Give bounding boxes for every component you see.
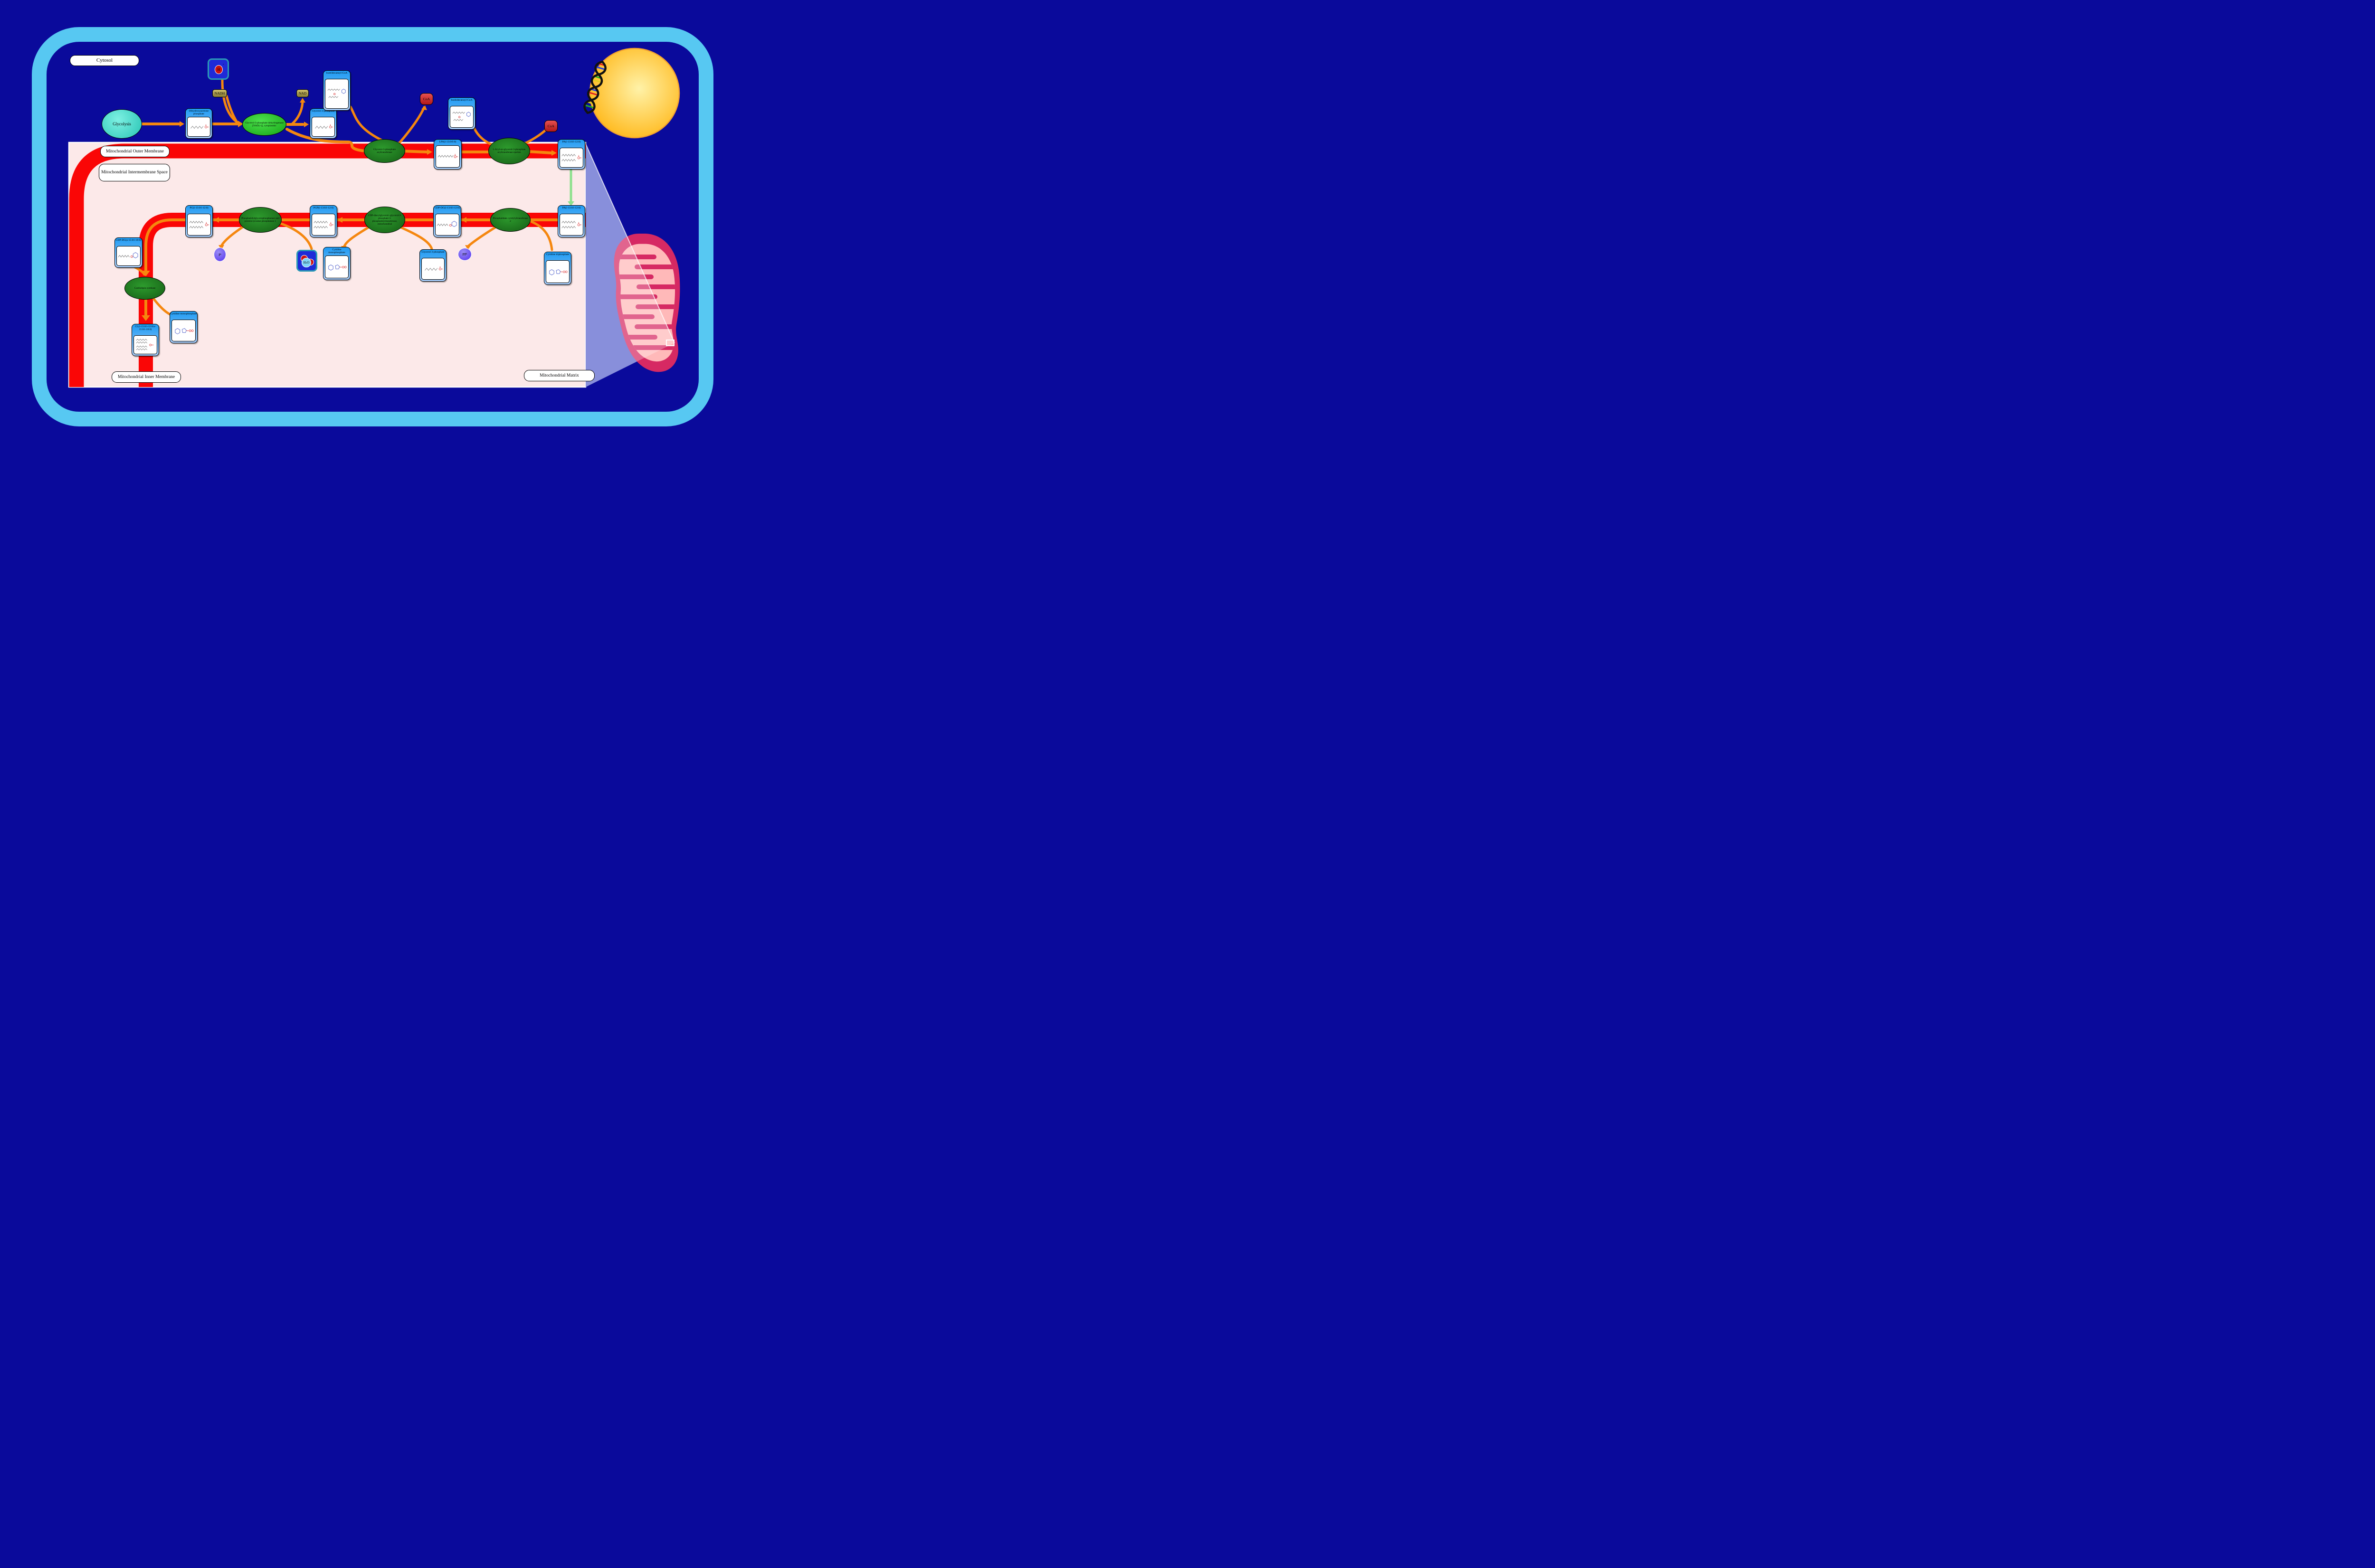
chemical-structure: [312, 214, 335, 236]
cofactor-ppi[interactable]: PPi: [458, 248, 472, 261]
metabolite-label: LPA(i-13:0/0:0): [434, 140, 461, 143]
chemical-structure: [325, 79, 349, 109]
metabolite-label: PA(i-13:0/i-12:0): [558, 140, 585, 143]
chemical-structure: [187, 117, 210, 137]
metabolite-node-pg[interactable]: PG(i-13:0/i-12:0): [185, 205, 213, 237]
cofactor-coa-1[interactable]: CoA: [420, 93, 433, 105]
chemical-structure: [436, 145, 460, 168]
chemical-structure: [325, 255, 349, 278]
chemical-structure: [560, 214, 583, 236]
metabolite-label: CDP-DG(a-15:0/i-18:0): [115, 238, 142, 242]
chemical-structure: [133, 335, 157, 354]
compartment-label-cytosol: Cytosol: [70, 55, 139, 66]
cofactor-nad[interactable]: NAD: [296, 89, 309, 97]
metabolite-node-pgp[interactable]: PGP(i-13:0/i-12:0): [310, 205, 337, 237]
metabolite-node-isododecanoyl_coa[interactable]: Isododecanoyl-CoA: [448, 97, 475, 130]
metabolite-label: Isotridecanoyl-CoA: [323, 71, 350, 75]
metabolite-node-ctp[interactable]: Cytidine triphosphate: [544, 252, 571, 285]
enzyme-label: Phosphatidate cytidylyltransferase 2: [492, 217, 529, 223]
enzyme-label: Glycerol-3-phosphate dehydrogenase [NAD(…: [244, 122, 285, 127]
metabolite-node-lpa[interactable]: LPA(i-13:0/0:0): [434, 139, 462, 170]
chemical-structure: [546, 260, 570, 283]
metabolite-node-cmp_2[interactable]: Cytidine monophosphate: [170, 311, 198, 343]
metabolite-node-g3p_matrix[interactable]: Glycerol 3-phosphate: [419, 249, 446, 282]
metabolite-label: CDP-DG(i-13:0/i-12:0): [434, 206, 461, 209]
metabolite-label: PGP(i-13:0/i-12:0): [310, 206, 337, 209]
enzyme-ptpmt1[interactable]: Phosphatidylglycerophosphatase and prote…: [239, 207, 282, 233]
enzyme-label: Glycerol-3-phosphate acyltransferase: [366, 148, 403, 154]
compartment-label-intermembrane-space: Mitochondrial Intermembrane Space: [99, 164, 170, 181]
compartment-label-matrix: Mitochondrial Matrix: [524, 370, 595, 381]
enzyme-label: 1-Acyl-sn-glycerol-3-phosphate acyltrans…: [490, 148, 528, 154]
metabolite-label: Cytidine monophosphate: [323, 247, 350, 254]
metabolite-label: Cytidine triphosphate: [544, 252, 571, 256]
chemical-structure: [450, 106, 474, 128]
chemical-structure: [312, 117, 335, 137]
chemical-structure: [171, 320, 196, 341]
cofactor-pi[interactable]: Pi: [214, 247, 226, 262]
cofactor-h-plus[interactable]: H+: [208, 58, 229, 80]
metabolite-label: Glycerol 3-phosphate: [420, 250, 446, 254]
metabolite-node-cmp_1[interactable]: Cytidine monophosphate: [323, 247, 351, 280]
metabolite-node-pa_inner[interactable]: PA(i-13:0/i-12:0): [558, 205, 585, 237]
metabolite-label: PA(i-13:0/i-12:0): [558, 206, 585, 209]
cofactor-h2o[interactable]: H2O: [296, 250, 317, 272]
chemical-structure: [421, 258, 445, 280]
arrow-gpd1-to-nad: [293, 101, 303, 123]
compartment-label-outer-membrane: Mitochondrial Outer Membrane: [100, 146, 170, 157]
enzyme-pgs1[interactable]: CDP-diacylglycerol--glycerol-3-phosphate…: [364, 207, 405, 233]
metabolite-node-cl[interactable]: CL(i-13:0/i-12:0/a-15:0/i-18:0): [132, 324, 159, 356]
metabolite-label: Cytidine monophosphate: [170, 312, 197, 315]
arrow-gpat-to-coa1: [395, 107, 424, 148]
chemical-structure: [560, 148, 583, 168]
chemical-structure: [187, 214, 211, 236]
chemical-structure: [435, 214, 459, 236]
arrow-hplus-to-gpd1: [222, 80, 237, 123]
enzyme-gpd1[interactable]: Glycerol-3-phosphate dehydrogenase [NAD(…: [242, 113, 286, 136]
cofactor-coa-2[interactable]: CoA: [544, 120, 558, 132]
enzyme-label: Cardiolipin synthase: [134, 287, 155, 290]
metabolite-node-cdp_dg[interactable]: CDP-DG(i-13:0/i-12:0): [433, 205, 461, 237]
water-molecule: H2O: [302, 258, 311, 267]
metabolite-node-g3p_cytosol[interactable]: Glycerol 3-phosphate: [310, 108, 337, 139]
arrow-agpat-to-pa: [528, 151, 551, 153]
metabolite-label: Isododecanoyl-CoA: [448, 98, 475, 102]
compartment-label-inner-membrane: Mitochondrial Inner Membrane: [112, 371, 181, 383]
metabolite-node-cdp_dg_a[interactable]: CDP-DG(a-15:0/i-18:0): [114, 237, 142, 268]
cofactor-nadh[interactable]: NADH: [212, 89, 227, 97]
arrow-isotridecanoylcoa-to-gpat: [351, 107, 389, 143]
h-plus-atom: H+: [215, 65, 223, 74]
enzyme-crls1[interactable]: Cardiolipin synthase: [124, 277, 165, 300]
enzyme-label: CDP-diacylglycerol--glycerol-3-phosphate…: [366, 214, 403, 226]
pathway-link-glycolysis[interactable]: Glycolysis: [102, 109, 142, 139]
enzyme-label: Phosphatidylglycerophosphatase and prote…: [241, 217, 280, 223]
metabolite-label: Dihydroxyacetone phosphate: [186, 109, 212, 115]
metabolite-node-dhap[interactable]: Dihydroxyacetone phosphate: [185, 108, 212, 139]
metabolite-node-pa_outer[interactable]: PA(i-13:0/i-12:0): [558, 139, 585, 170]
metabolite-label: PG(i-13:0/i-12:0): [186, 206, 212, 209]
enzyme-gpat[interactable]: Glycerol-3-phosphate acyltransferase: [364, 139, 405, 163]
enzyme-agpat_epsilon[interactable]: 1-Acyl-sn-glycerol-3-phosphate acyltrans…: [488, 138, 530, 164]
chemical-structure: [116, 246, 141, 266]
enzyme-pcyt2[interactable]: Phosphatidate cytidylyltransferase 2: [490, 208, 531, 232]
metabolite-label: CL(i-13:0/i-12:0/a-15:0/i-18:0): [132, 324, 159, 331]
metabolite-node-isotridecanoyl_coa[interactable]: Isotridecanoyl-CoA: [323, 70, 351, 111]
pathway-canvas: Cytosol Mitochondrial Outer Membrane Mit…: [0, 0, 745, 455]
